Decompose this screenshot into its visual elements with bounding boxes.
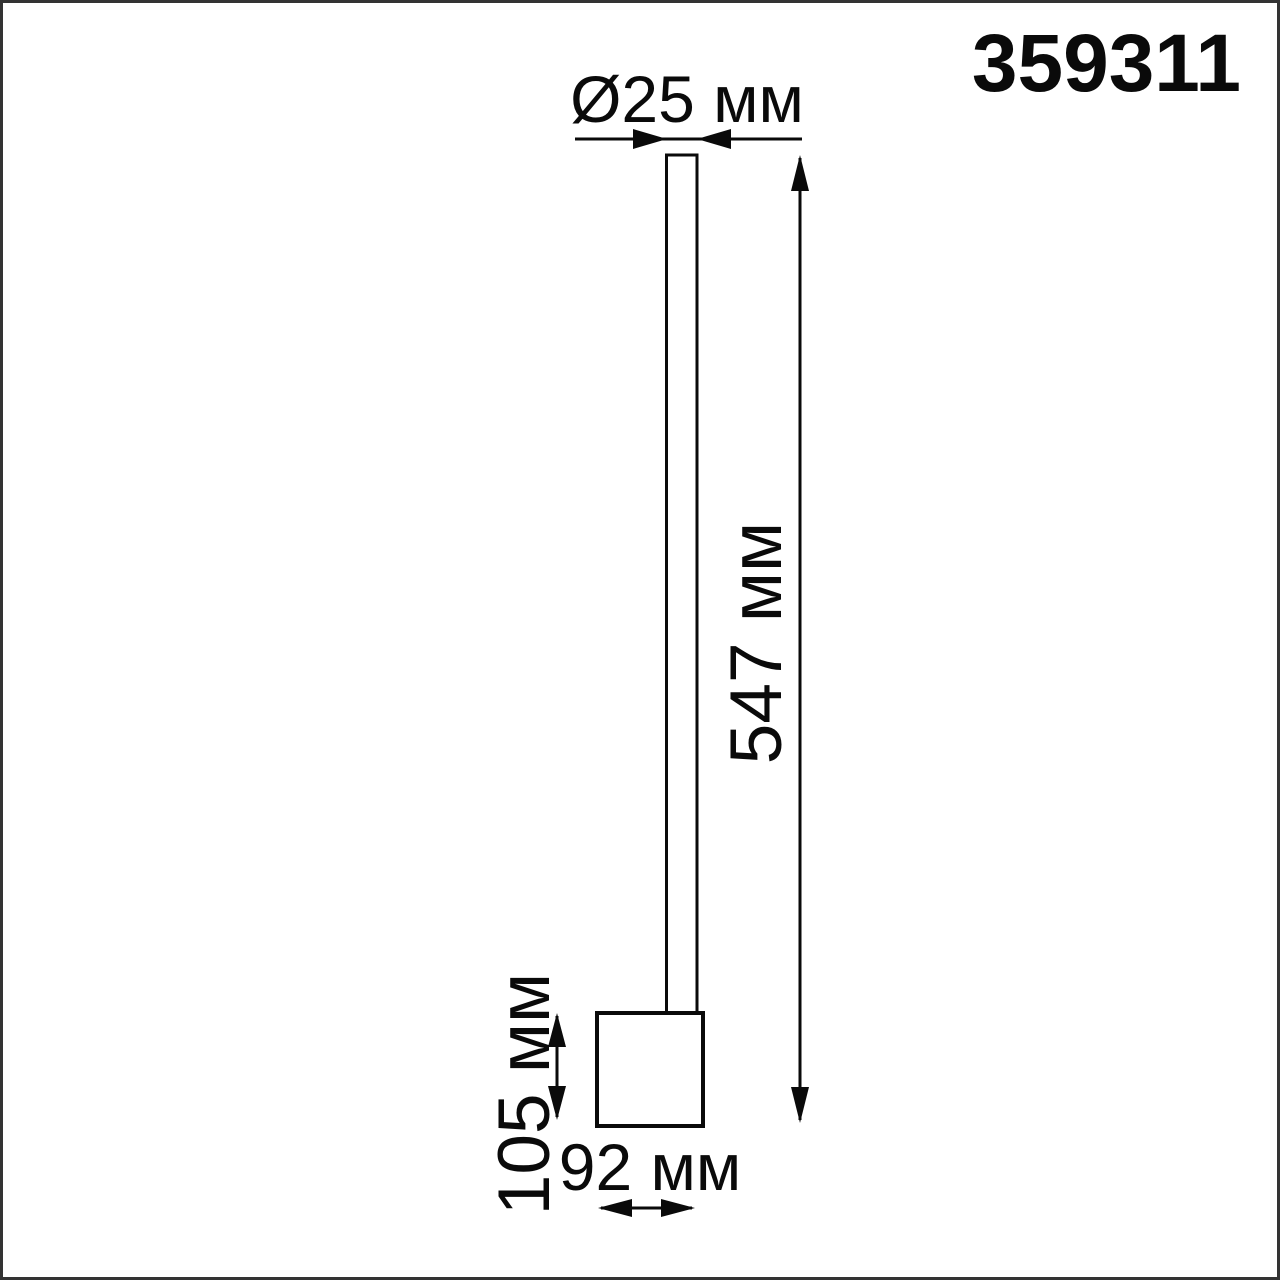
diameter-label: Ø25 мм [570,62,804,136]
height-label: 547 мм [716,522,797,764]
dimension-base-height: 105 мм [484,973,566,1215]
dimension-base-width: 92 мм [559,1130,742,1217]
base-width-label: 92 мм [559,1130,742,1204]
lamp-tube [667,155,698,1013]
base-height-label: 105 мм [484,973,565,1215]
technical-drawing: Ø25 мм 547 мм 105 мм 92 мм 359311 [0,0,1280,1280]
product-code: 359311 [972,18,1241,109]
dimension-total-height: 547 мм [716,155,809,1123]
height-arrow-down-icon [791,1087,809,1123]
lamp-base [597,1013,703,1126]
dimension-diameter: Ø25 мм [570,62,804,149]
technical-drawing-page: Ø25 мм 547 мм 105 мм 92 мм 359311 [0,0,1280,1280]
height-arrow-up-icon [791,155,809,191]
